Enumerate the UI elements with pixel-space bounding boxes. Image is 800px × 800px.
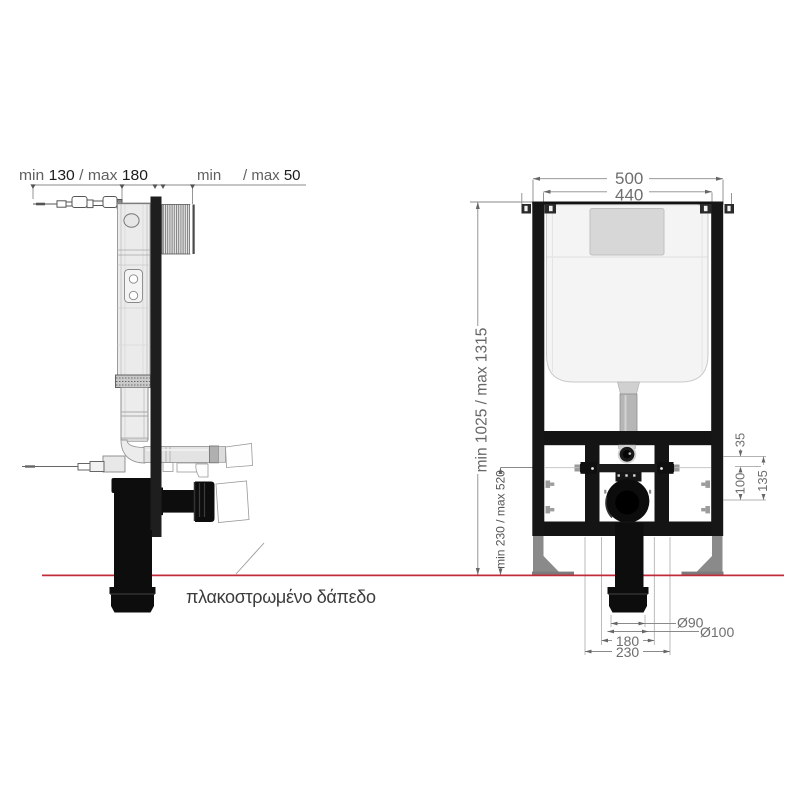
svg-text:35: 35 [733, 433, 748, 447]
svg-text:min 130 / max 180: min 130 / max 180 [19, 167, 148, 184]
svg-text:min 1025 / max 1315: min 1025 / max 1315 [474, 328, 491, 473]
svg-text:min 230 / max 520: min 230 / max 520 [494, 470, 508, 569]
svg-text:Ø100: Ø100 [700, 624, 734, 640]
svg-text:min: min [197, 167, 221, 184]
svg-text:230: 230 [616, 644, 640, 660]
svg-text:100: 100 [733, 473, 748, 495]
svg-text:135: 135 [755, 470, 770, 492]
svg-text:πλακοστρωμένο δάπεδο: πλακοστρωμένο δάπεδο [186, 587, 376, 607]
svg-text:/ max 50: / max 50 [243, 167, 301, 184]
